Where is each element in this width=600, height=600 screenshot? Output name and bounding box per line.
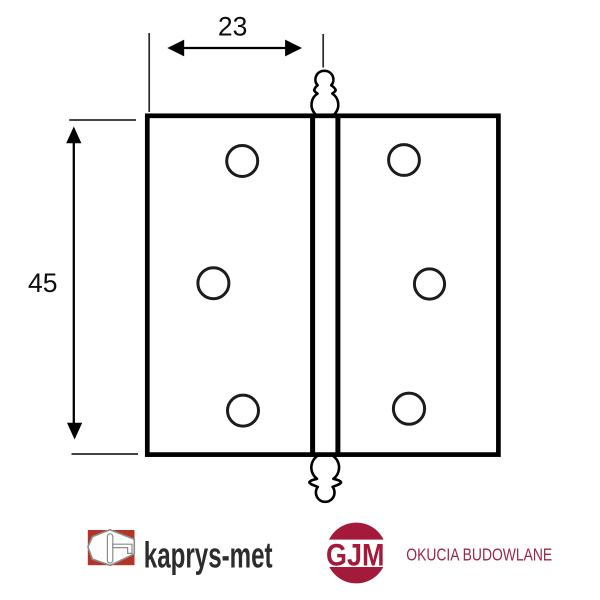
svg-text:OKUCIA BUDOWLANE: OKUCIA BUDOWLANE xyxy=(406,544,552,564)
svg-text:kaprys-met: kaprys-met xyxy=(144,534,273,575)
svg-text:45: 45 xyxy=(28,268,57,298)
svg-text:GJM: GJM xyxy=(326,536,384,572)
svg-text:23: 23 xyxy=(218,12,247,42)
